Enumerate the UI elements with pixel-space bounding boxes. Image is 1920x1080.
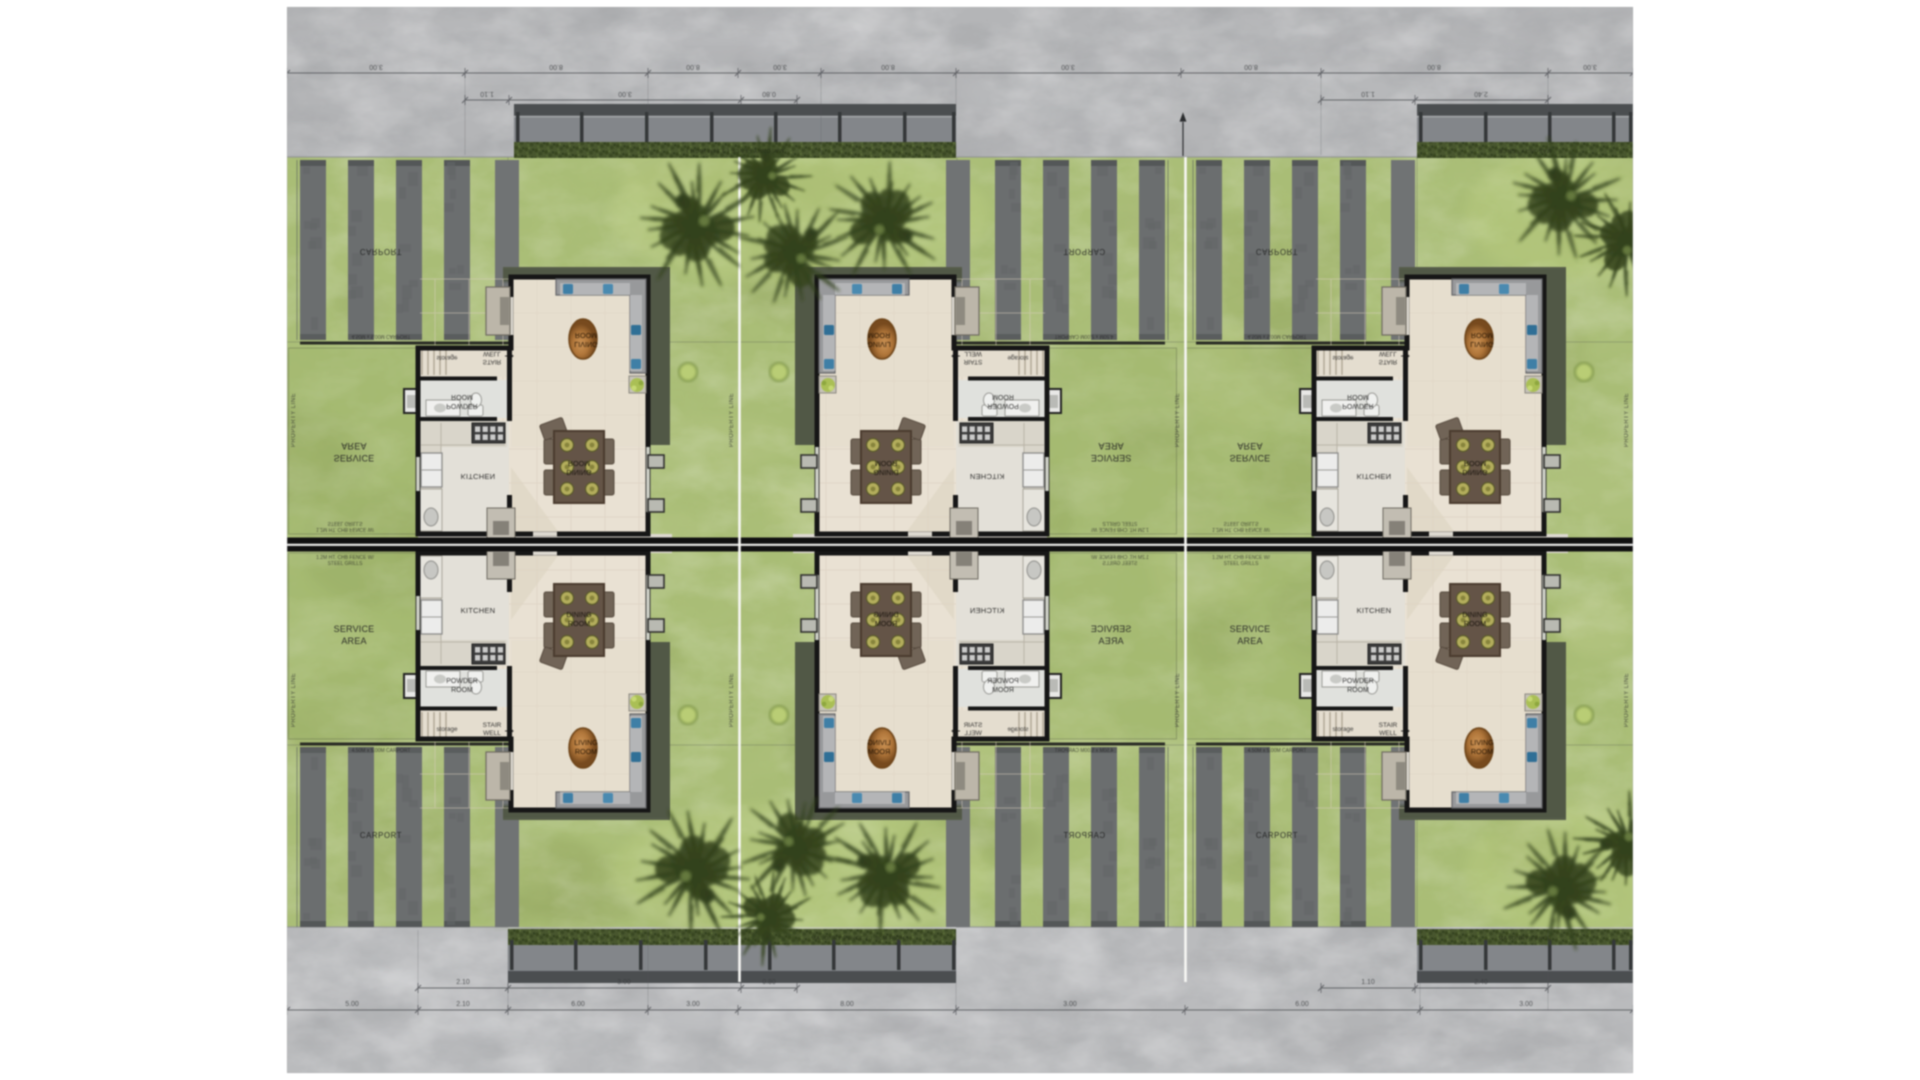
svg-text:MASONRY FENCE ( 1.80M HIGH ): MASONRY FENCE ( 1.80M HIGH )	[686, 147, 784, 153]
svg-text:PROPERTY LINE: PROPERTY LINE	[1624, 673, 1630, 727]
svg-text:8.00: 8.00	[549, 63, 563, 70]
svg-text:MASONRY FENCE ( 1.80M HIGH ): MASONRY FENCE ( 1.80M HIGH )	[811, 936, 909, 942]
svg-text:PROPERTY LINE: PROPERTY LINE	[291, 673, 297, 727]
svg-text:WELL: WELL	[483, 730, 501, 737]
svg-text:PROPERTY LINE: PROPERTY LINE	[291, 393, 297, 447]
svg-text:STAIR: STAIR	[483, 722, 502, 729]
svg-text:ROOM: ROOM	[568, 619, 590, 628]
svg-text:1.10: 1.10	[480, 90, 494, 97]
svg-text:STEEL GRILLS: STEEL GRILLS	[328, 561, 363, 567]
svg-text:PROPERTY LINE: PROPERTY LINE	[1175, 393, 1181, 447]
svg-text:8.00: 8.00	[1244, 63, 1258, 70]
svg-text:PROPERTY LINE: PROPERTY LINE	[729, 673, 735, 727]
svg-text:PROPERTY LINE: PROPERTY LINE	[729, 393, 735, 447]
svg-text:storage: storage	[436, 726, 458, 733]
svg-text:3.00: 3.00	[618, 90, 632, 97]
svg-text:LIVING: LIVING	[574, 738, 598, 747]
svg-text:MASONRY FENCE: MASONRY FENCE	[1499, 936, 1552, 942]
svg-text:3.00: 3.00	[1061, 63, 1075, 70]
svg-text:PROPERTY LINE: PROPERTY LINE	[1624, 393, 1630, 447]
svg-text:8.00: 8.00	[1427, 63, 1441, 70]
svg-text:MASONRY FENCE: MASONRY FENCE	[1499, 147, 1552, 153]
svg-text:2.10: 2.10	[456, 1001, 470, 1008]
svg-text:3.00: 3.00	[369, 63, 383, 70]
svg-text:0.80: 0.80	[762, 90, 776, 97]
svg-text:3.00: 3.00	[1583, 63, 1597, 70]
svg-text:ROOM: ROOM	[451, 687, 473, 694]
svg-text:1.10: 1.10	[1361, 979, 1375, 986]
svg-text:ROOM: ROOM	[575, 747, 597, 756]
svg-text:3.00: 3.00	[686, 1001, 700, 1008]
svg-text:6.00: 6.00	[571, 1001, 585, 1008]
svg-text:SERVICE: SERVICE	[334, 624, 375, 634]
svg-text:6.00: 6.00	[1295, 1001, 1309, 1008]
svg-text:3.00: 3.00	[1519, 1001, 1533, 1008]
svg-text:1.10: 1.10	[1361, 90, 1375, 97]
svg-text:AREA: AREA	[341, 636, 366, 646]
svg-text:3.00: 3.00	[617, 979, 631, 986]
svg-text:2.10: 2.10	[456, 979, 470, 986]
svg-text:KITCHEN: KITCHEN	[461, 606, 496, 615]
svg-text:5.00: 5.00	[345, 1001, 359, 1008]
svg-text:POWDER: POWDER	[446, 678, 478, 685]
svg-text:2.40: 2.40	[1474, 979, 1488, 986]
svg-text:CARPORT: CARPORT	[360, 831, 402, 840]
svg-text:0.80: 0.80	[762, 979, 776, 986]
svg-text:4.50M x 5.00M CARPORT: 4.50M x 5.00M CARPORT	[352, 748, 411, 754]
svg-text:3.00: 3.00	[773, 63, 787, 70]
svg-text:8.00: 8.00	[881, 63, 895, 70]
svg-text:PROPERTY LINE: PROPERTY LINE	[1175, 673, 1181, 727]
svg-text:8.00: 8.00	[686, 63, 700, 70]
svg-text:8.00: 8.00	[840, 1001, 854, 1008]
svg-text:3.00: 3.00	[1063, 1001, 1077, 1008]
svg-text:2.40: 2.40	[1474, 90, 1488, 97]
svg-text:DINING: DINING	[566, 610, 592, 619]
